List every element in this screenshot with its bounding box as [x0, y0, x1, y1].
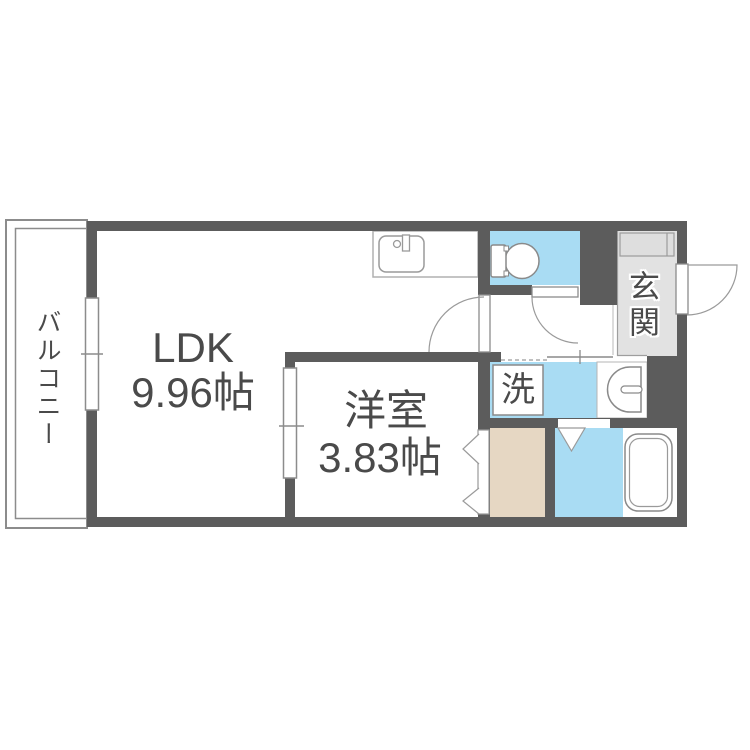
wall-washroom-stub — [490, 352, 501, 362]
balcony-label: バルコニー — [35, 304, 65, 454]
wall-room-top — [285, 352, 490, 362]
bathtub-icon — [625, 434, 672, 511]
wall-entrance-bath-block — [647, 356, 677, 428]
washing-machine-space — [501, 352, 547, 361]
closet-floor — [490, 428, 545, 517]
floor-plan: バルコニー LDK 9.96帖 洋室 3.83帖 玄関 洗 — [0, 0, 750, 750]
western-room-area: 3.83帖 — [290, 436, 470, 480]
kitchen-sink-icon — [373, 231, 478, 277]
laundry-label: 洗 — [493, 369, 543, 411]
wall-closet-bath — [545, 428, 555, 517]
door-swing-arc — [687, 265, 737, 315]
wall-bottom — [87, 517, 687, 527]
wall-toilet-bottom — [490, 285, 532, 295]
door-swing-arc — [532, 297, 578, 343]
toilet-icon — [491, 244, 539, 279]
door-swing-arc — [429, 297, 484, 352]
entrance-label: 玄関 — [630, 261, 664, 351]
entrance-door — [676, 264, 737, 315]
ldk-area: 9.96帖 — [98, 371, 288, 415]
western-room-label: 洋室 — [296, 389, 476, 433]
ldk-hall-door — [429, 295, 490, 352]
wall-ldk-toilet — [478, 231, 490, 295]
folding-door-chevron — [463, 488, 479, 514]
ldk-label: LDK — [98, 326, 288, 370]
wall-toilet-entrance — [580, 221, 617, 305]
shoe-cabinet — [620, 233, 674, 256]
toilet-door — [532, 287, 578, 343]
